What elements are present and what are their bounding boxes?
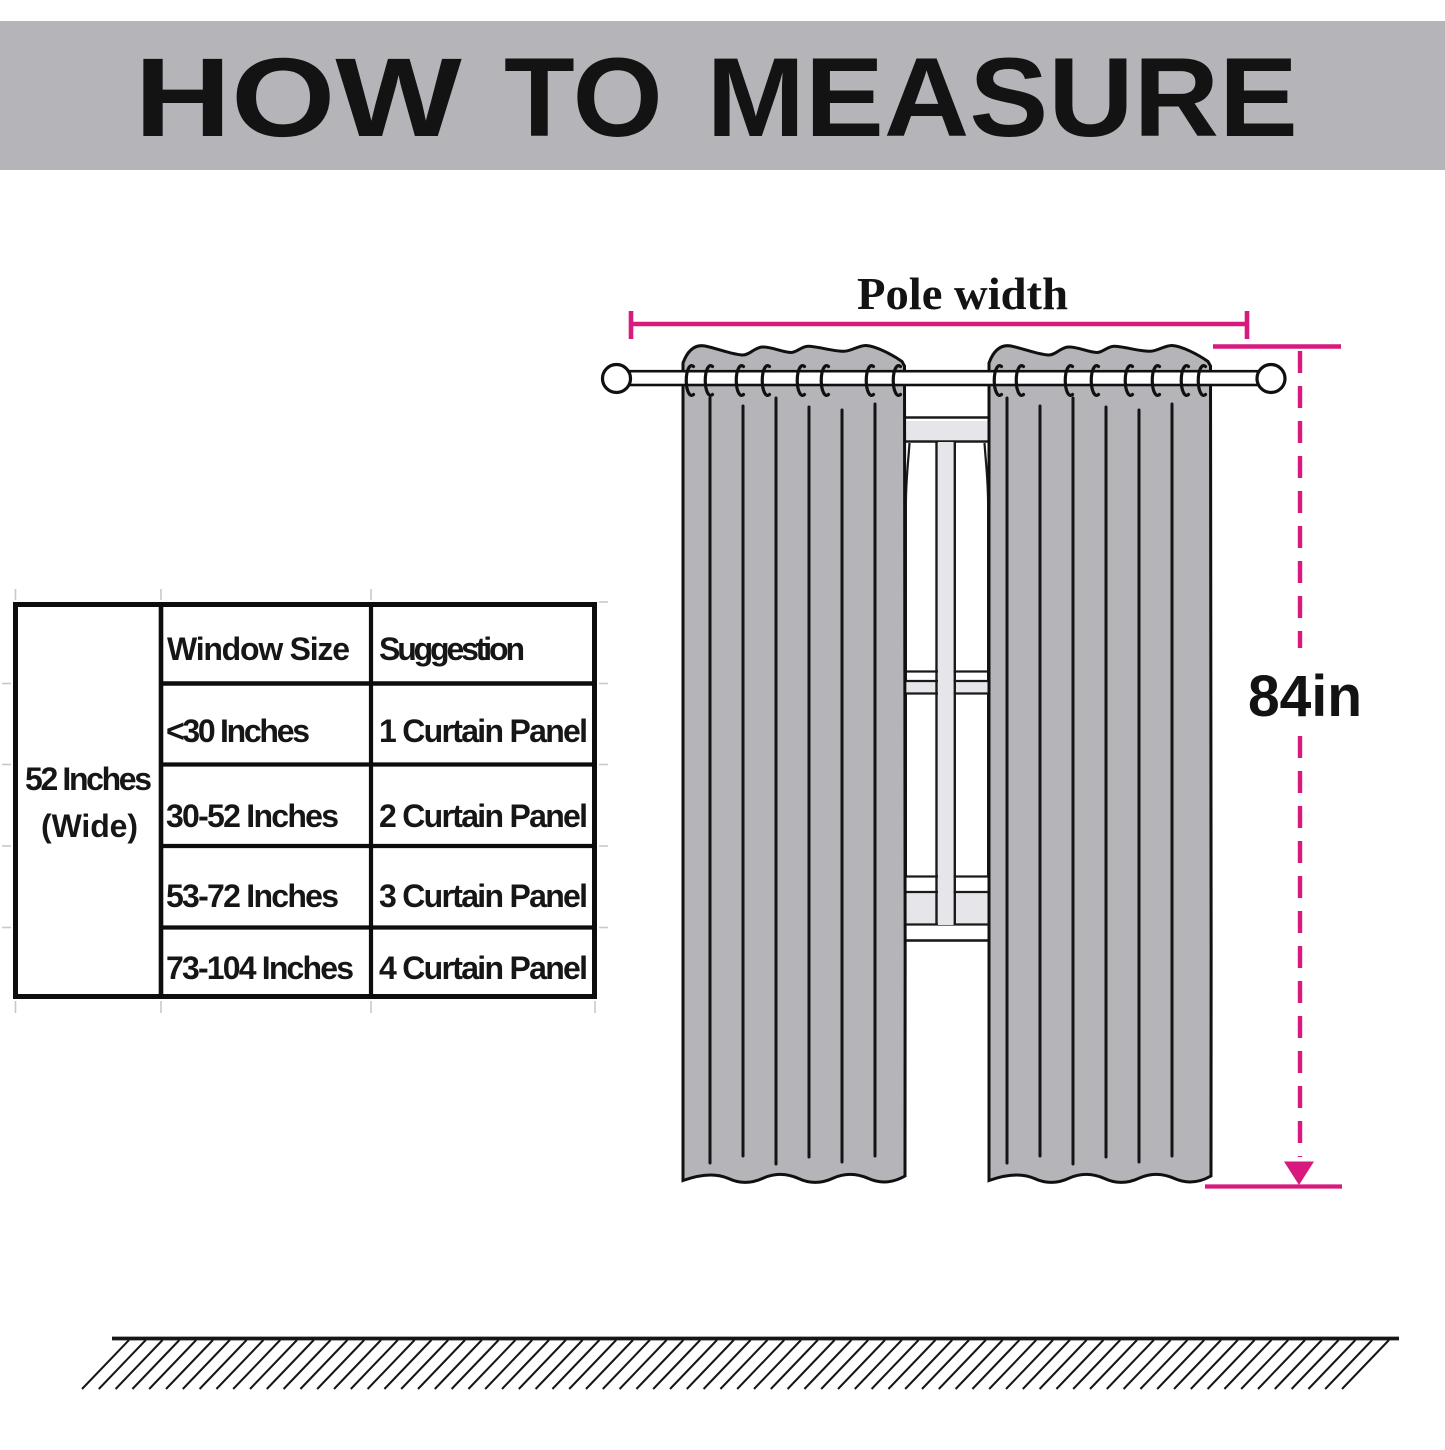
svg-text:1 Curtain Panel: 1 Curtain Panel (379, 713, 588, 749)
svg-text:3 Curtain Panel: 3 Curtain Panel (379, 878, 588, 914)
svg-text:4 Curtain Panel: 4 Curtain Panel (379, 950, 588, 986)
svg-text:Window Size: Window Size (167, 631, 350, 667)
svg-text:73-104 Inches: 73-104 Inches (166, 950, 354, 986)
svg-text:84in: 84in (1248, 664, 1362, 729)
svg-text:HOW: HOW (134, 35, 462, 160)
svg-text:MEASURE: MEASURE (707, 36, 1298, 160)
svg-text:53-72 Inches: 53-72 Inches (166, 878, 339, 914)
svg-text:30-52 Inches: 30-52 Inches (166, 798, 339, 834)
svg-text:Suggestion: Suggestion (379, 631, 525, 667)
svg-text:TO: TO (504, 36, 663, 161)
svg-text:<30 Inches: <30 Inches (166, 713, 310, 749)
svg-text:2 Curtain Panel: 2 Curtain Panel (379, 798, 588, 834)
svg-text:Pole width: Pole width (857, 269, 1068, 319)
svg-text:52 Inches: 52 Inches (25, 761, 152, 797)
svg-text:(Wide): (Wide) (41, 808, 138, 844)
